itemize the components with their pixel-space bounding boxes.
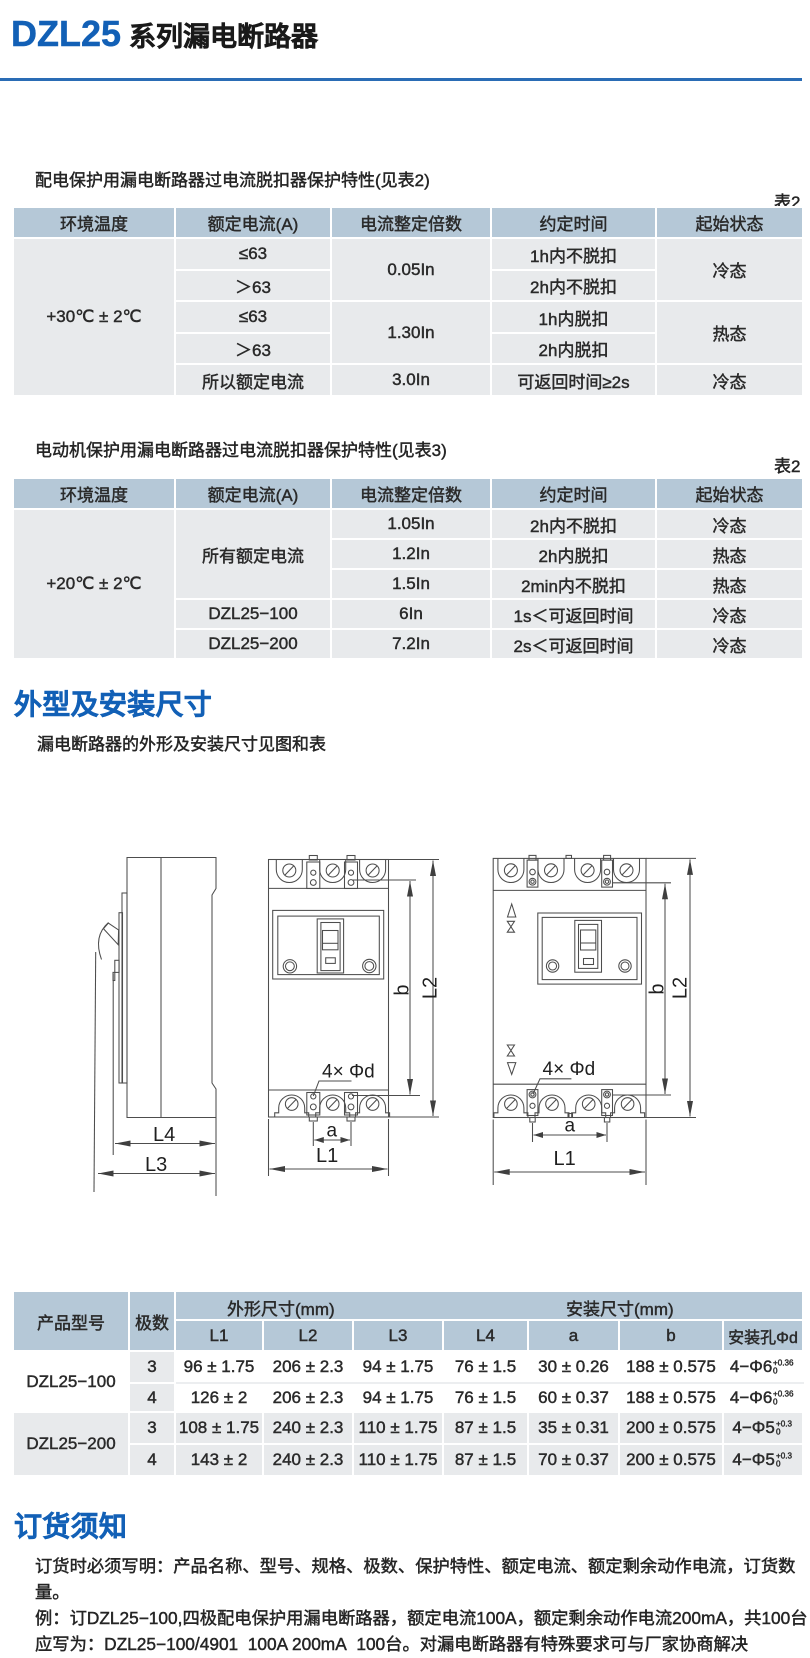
svg-text:a: a <box>327 1121 338 1142</box>
svg-text:L4: L4 <box>153 1124 175 1146</box>
svg-text:4× Φd: 4× Φd <box>322 1062 375 1083</box>
svg-text:b: b <box>392 984 414 995</box>
svg-text:4× Φd: 4× Φd <box>543 1059 596 1080</box>
svg-text:b: b <box>647 983 669 994</box>
svg-text:L2: L2 <box>420 977 442 999</box>
svg-text:L2: L2 <box>670 977 692 999</box>
svg-text:L1: L1 <box>316 1145 338 1167</box>
svg-text:L1: L1 <box>554 1148 576 1170</box>
svg-text:L3: L3 <box>145 1154 167 1176</box>
svg-text:a: a <box>565 1116 576 1137</box>
